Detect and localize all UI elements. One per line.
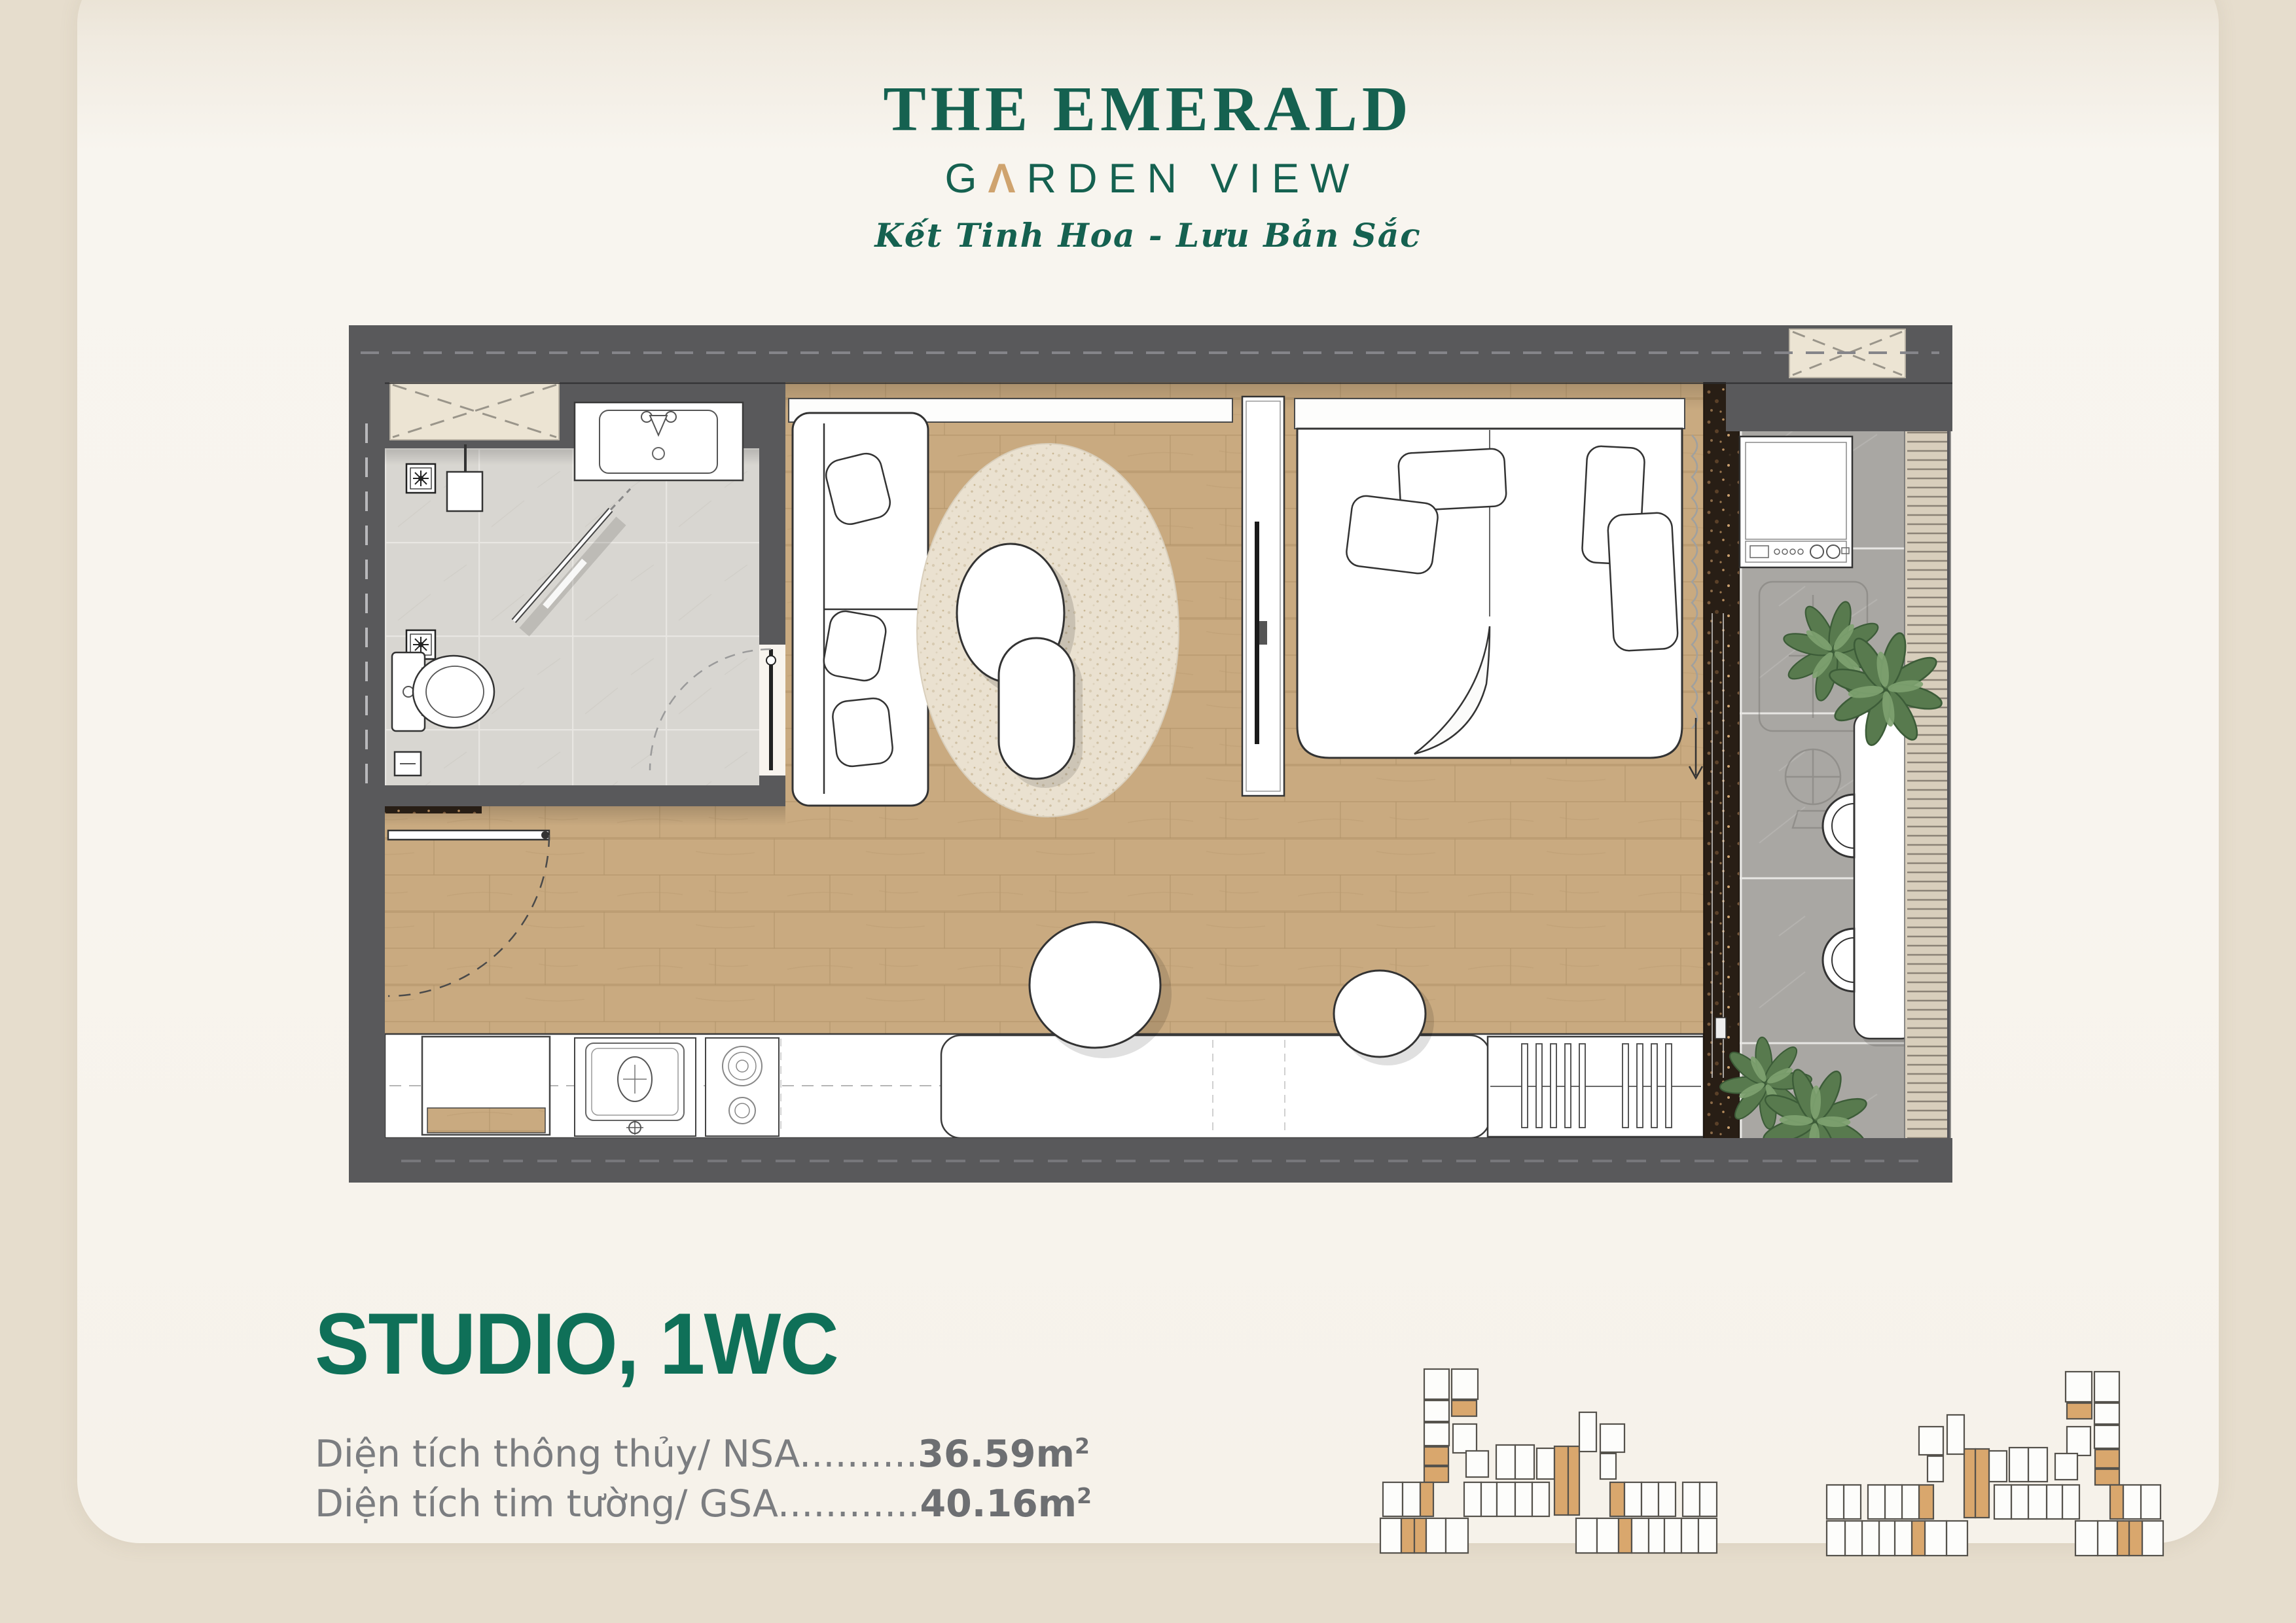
- key-plan-unit: [1827, 1485, 1844, 1519]
- area-sup: 2: [1077, 1483, 1092, 1508]
- key-plan-unit: [2094, 1372, 2119, 1402]
- area-value: 40.16: [920, 1482, 1037, 1525]
- unit-areas: Diện tích thông thủy/ NSA..........36.59…: [315, 1430, 1092, 1529]
- key-plan-unit: [1532, 1482, 1549, 1516]
- area-sup: 2: [1075, 1433, 1090, 1459]
- side-table: [999, 638, 1083, 788]
- vanity-sink: [575, 402, 743, 480]
- key-plan-unit: [1681, 1518, 1698, 1553]
- key-plan-unit-highlighted: [2067, 1403, 2092, 1419]
- key-plan-unit: [2009, 1448, 2028, 1482]
- brand-subtitle-g: G: [944, 156, 988, 202]
- key-plan-unit: [1600, 1424, 1624, 1452]
- key-plan-unit-highlighted: [1619, 1518, 1632, 1553]
- key-plan-unit: [1632, 1518, 1649, 1553]
- key-plan-unit: [1515, 1445, 1534, 1479]
- key-plan-unit: [2028, 1448, 2047, 1482]
- key-plan-unit: [1827, 1521, 1845, 1556]
- key-plan-unit: [1659, 1482, 1676, 1516]
- key-plan-unit: [1576, 1518, 1597, 1553]
- tv: [1255, 522, 1259, 744]
- key-plan-unit-highlighted: [2095, 1450, 2119, 1468]
- key-plan-unit: [1879, 1521, 1895, 1556]
- key-plan-unit-highlighted: [2095, 1469, 2119, 1485]
- key-plan-unit: [1844, 1485, 1861, 1519]
- key-plan-unit: [2062, 1485, 2079, 1519]
- key-plan-building-2: [1827, 1372, 2163, 1556]
- key-plan-unit-highlighted: [1554, 1446, 1568, 1515]
- key-plan-unit: [1446, 1518, 1468, 1553]
- key-plan-unit: [1497, 1482, 1515, 1516]
- bathroom-divider-wall: [759, 378, 785, 645]
- key-plan-unit: [1683, 1482, 1700, 1516]
- key-plan-unit: [1466, 1451, 1488, 1477]
- key-plan-unit-highlighted: [1401, 1518, 1414, 1553]
- key-plan-unit: [1885, 1485, 1902, 1519]
- cooktop: [706, 1038, 779, 1136]
- key-plan-unit: [1845, 1521, 1862, 1556]
- unit-info: STUDIO, 1WC Diện tích thông thủy/ NSA...…: [315, 1301, 1092, 1529]
- key-plan-unit-highlighted: [1568, 1446, 1579, 1515]
- key-plan-unit: [2055, 1454, 2077, 1480]
- balcony: [1740, 382, 1924, 1149]
- key-plan-unit: [1624, 1482, 1641, 1516]
- key-plan-unit: [1994, 1485, 2011, 1519]
- key-plan-unit: [1925, 1521, 1946, 1556]
- key-plan-unit: [1464, 1482, 1481, 1516]
- key-plan-unit-highlighted: [1424, 1467, 1448, 1482]
- area-label: Diện tích tim tường/ GSA: [315, 1482, 778, 1525]
- key-plan-building-1: [1380, 1369, 1717, 1553]
- key-plan-unit: [2098, 1521, 2117, 1556]
- key-plan-unit-highlighted: [1424, 1447, 1448, 1465]
- pillow: [1607, 512, 1679, 652]
- key-plan-svg: [1342, 1346, 2258, 1575]
- key-plan-unit: [2075, 1521, 2098, 1556]
- key-plan-unit: [2067, 1427, 2090, 1455]
- key-plan-unit: [1649, 1518, 1664, 1553]
- key-plan-unit: [1700, 1482, 1717, 1516]
- railing: [1905, 382, 1950, 1149]
- key-plan-unit-highlighted: [2117, 1521, 2129, 1556]
- key-plan-unit: [1600, 1454, 1616, 1479]
- louver-cabinet: [1488, 1037, 1704, 1137]
- brand-title: THE EMERALD: [874, 77, 1421, 141]
- key-plan-unit: [2028, 1485, 2047, 1519]
- area-line-gsa: Diện tích tim tường/ GSA............40.1…: [315, 1480, 1092, 1529]
- key-plan-unit: [1496, 1445, 1515, 1479]
- key-plan-unit: [2094, 1403, 2119, 1424]
- brand-tagline: Kết Tinh Hoa - Lưu Bản Sắc: [874, 219, 1421, 252]
- bed: [1297, 429, 1682, 758]
- key-plan-unit: [1862, 1521, 1879, 1556]
- area-unit: m: [1036, 1433, 1075, 1476]
- key-plan-unit-highlighted: [1919, 1485, 1933, 1519]
- key-plan-unit: [2141, 1485, 2161, 1519]
- key-plan-unit: [1424, 1423, 1449, 1446]
- area-label: Diện tích thông thủy/ NSA: [315, 1433, 799, 1476]
- shaft-hatch-left: [390, 382, 559, 440]
- key-plan-unit: [1426, 1518, 1446, 1553]
- key-plan-unit-highlighted: [2129, 1521, 2142, 1556]
- key-plan-unit: [1383, 1482, 1403, 1516]
- key-plan-unit: [1919, 1427, 1943, 1455]
- sofa: [793, 413, 928, 806]
- pillow: [1345, 494, 1439, 575]
- key-plan-unit-highlighted: [1420, 1482, 1433, 1516]
- key-plan-unit: [2142, 1521, 2163, 1556]
- key-plan-unit: [1515, 1482, 1532, 1516]
- key-plan-unit: [1403, 1482, 1420, 1516]
- area-value: 36.59: [918, 1433, 1035, 1476]
- key-plan-unit: [1424, 1369, 1449, 1399]
- key-plan-unit: [1380, 1518, 1401, 1553]
- floor-drain: [406, 464, 435, 493]
- key-plan-unit: [1424, 1400, 1449, 1421]
- key-plan-unit: [1946, 1521, 1967, 1556]
- gold-a-mark: Λ: [988, 156, 1026, 202]
- brand-subtitle: GΛRDEN VIEW: [874, 158, 1421, 200]
- key-plan-unit: [1947, 1415, 1964, 1454]
- key-plan-unit: [1989, 1451, 2007, 1482]
- key-plan-unit: [2123, 1485, 2141, 1519]
- dots: ..........: [799, 1433, 918, 1476]
- kitchen-cabinet: [422, 1037, 550, 1135]
- key-plan-unit: [1453, 1424, 1477, 1453]
- key-plan-unit: [2094, 1425, 2119, 1448]
- bed-headboard: [1295, 399, 1685, 429]
- bathroom: [385, 378, 759, 785]
- key-plan-unit-highlighted: [1964, 1449, 1975, 1518]
- key-plan-unit-highlighted: [1610, 1482, 1624, 1516]
- key-plan-unit: [1641, 1482, 1659, 1516]
- key-plan-unit: [1481, 1482, 1497, 1516]
- brand-logo: THE EMERALD GΛRDEN VIEW Kết Tinh Hoa - L…: [874, 77, 1421, 252]
- key-plan-unit: [2047, 1485, 2062, 1519]
- key-plan: [1342, 1346, 2258, 1575]
- floor-plan-svg: [349, 325, 1952, 1183]
- key-plan-unit: [1537, 1448, 1554, 1479]
- key-plan-unit: [2066, 1372, 2092, 1402]
- floor-plan: [349, 325, 1952, 1183]
- key-plan-unit: [2011, 1485, 2028, 1519]
- key-plan-unit-highlighted: [2110, 1485, 2123, 1519]
- brand-subtitle-rest: RDEN VIEW: [1027, 156, 1361, 202]
- tv-console: [1242, 397, 1284, 796]
- key-plan-unit-highlighted: [1912, 1521, 1925, 1556]
- unit-title: STUDIO, 1WC: [315, 1301, 1045, 1388]
- key-plan-unit: [1698, 1518, 1717, 1553]
- area-unit: m: [1038, 1482, 1077, 1525]
- key-plan-unit: [1928, 1456, 1943, 1482]
- key-plan-unit-highlighted: [1452, 1400, 1477, 1416]
- key-plan-unit-highlighted: [1975, 1449, 1989, 1518]
- key-plan-unit: [1664, 1518, 1681, 1553]
- key-plan-unit: [1452, 1369, 1478, 1399]
- key-plan-unit-highlighted: [1414, 1518, 1426, 1553]
- key-plan-unit: [1597, 1518, 1619, 1553]
- key-plan-unit: [1579, 1412, 1596, 1452]
- dots: ............: [778, 1482, 920, 1525]
- area-line-nsa: Diện tích thông thủy/ NSA..........36.59…: [315, 1430, 1092, 1480]
- key-plan-unit: [1895, 1521, 1912, 1556]
- kitchen-sink: [575, 1038, 696, 1136]
- washing-machine: [1740, 437, 1852, 567]
- key-plan-unit: [1902, 1485, 1919, 1519]
- key-plan-unit: [1868, 1485, 1885, 1519]
